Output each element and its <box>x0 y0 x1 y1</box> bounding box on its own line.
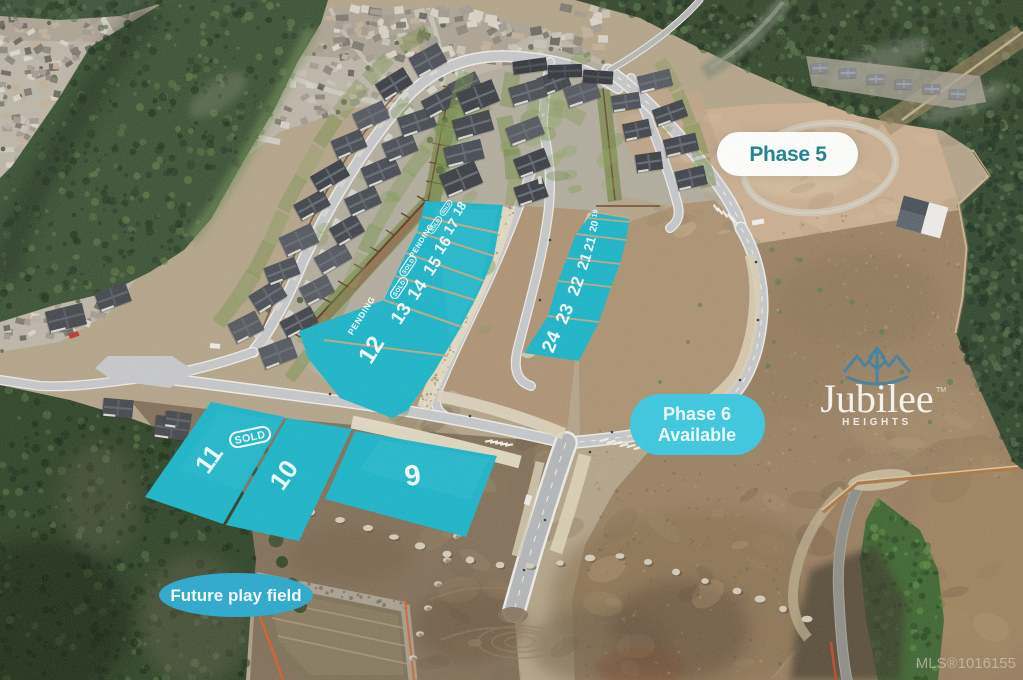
svg-text:MLS®1016155: MLS®1016155 <box>916 655 1016 672</box>
